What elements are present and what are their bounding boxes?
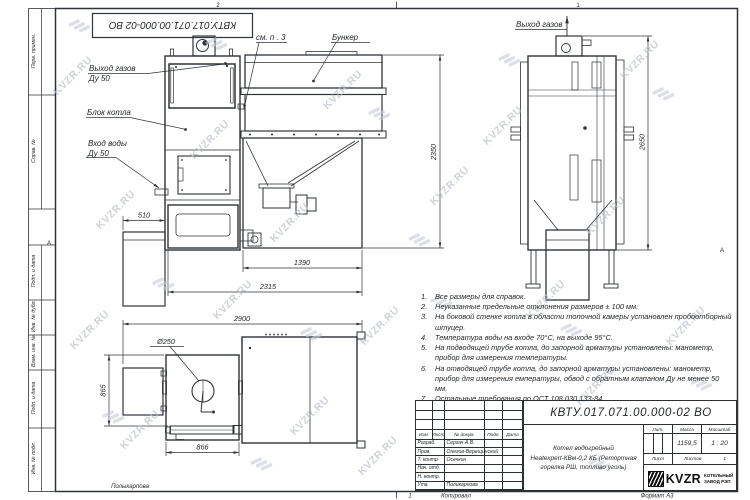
logo-subtitle: КОТЕЛЬНЫЙ ЗАВОД РЭП (704, 473, 733, 485)
note-number: 3. (420, 312, 435, 332)
revision-cell (485, 411, 503, 421)
zone-right-a: А (720, 248, 724, 254)
note-item: 2.Неуказанные предельные отклонения разм… (420, 302, 732, 312)
signature-sign (485, 448, 503, 456)
callout-bunker: Бункер (332, 33, 359, 42)
signature-date (503, 482, 523, 490)
col-header-date: Дата (503, 430, 523, 440)
signature-sign (485, 440, 503, 448)
callout-water-in-size: Ду 50 (87, 149, 109, 158)
note-text: На боковой стенке котла в области топочн… (435, 312, 732, 332)
scale-label: Масштаб (702, 425, 738, 434)
watermark: KVZR.RU (358, 304, 402, 348)
title-block: Изм. Лист № докум. Подп. Дата Разраб. Се… (415, 400, 737, 491)
dim-label-510: 510 (138, 211, 150, 220)
lit-cells (644, 434, 673, 454)
note-number: 2. (420, 302, 435, 312)
product-line: Котел водогрейный (553, 444, 614, 454)
dim-label-1390: 1390 (294, 258, 310, 267)
col-header-doc: № докум. (445, 430, 485, 440)
signature-date (503, 440, 523, 448)
signature-role: Разраб. (416, 440, 445, 448)
dim-label-2650: 2650 (638, 134, 647, 151)
revision-cell (503, 420, 523, 430)
note-number: 1. (420, 292, 435, 302)
signature-name: Поликарпова (445, 482, 485, 490)
mass-label: Масса (673, 425, 702, 434)
kvzr-stripes-icon (649, 472, 663, 486)
signature-name: Сергач А.В. (445, 440, 485, 448)
margin-label: Подп. и дата (31, 382, 37, 415)
note-number: 5. (420, 343, 435, 363)
callout-see-note: см. п . 3 (256, 33, 286, 42)
dim-label-865: 865 (99, 383, 108, 396)
margin-label: Инв. № дубл. (31, 300, 37, 332)
footer-signature: Полыкарпова (111, 484, 149, 490)
watermark: KVZR.RU (428, 164, 472, 208)
signature-role: Т. контр. (416, 456, 445, 464)
zone-left-a: А (47, 241, 51, 247)
revision-cell (503, 401, 523, 411)
watermark: KVZR.RU (584, 194, 628, 238)
note-item: 6.На отводящей трубе котла, до запорной … (420, 364, 732, 395)
revision-cell (416, 411, 433, 421)
note-item: 3.На боковой стенке котла в области топо… (420, 312, 732, 332)
side-view-callouts: Выход газов Ду 50 Блок котла Вход воды Д… (87, 64, 136, 158)
product-name: Котел водогрейный Heatexpert-КВм-0,2 КБ … (523, 425, 643, 492)
margin-column-labels: Перв. примен. Справ. № Подп. и дата Инв.… (31, 34, 37, 474)
note-text: Неуказанные предельные отклонения размер… (435, 302, 732, 312)
plan-view-drawing (123, 332, 365, 448)
lit-label: Лит. (644, 425, 673, 434)
note-text: На отводящей трубе котла, до запорной ар… (435, 364, 732, 395)
dim-label-866: 866 (196, 443, 209, 452)
sheets-cell: Листов 1 (673, 454, 738, 465)
top-stamp-number: КВТУ.017.071.00.000-02 ВО (109, 19, 237, 30)
callout-gas-out-size: Ду 50 (88, 74, 110, 83)
right-view-callouts: Выход газов (516, 20, 563, 29)
signature-role: Пров. (416, 448, 445, 456)
note-item: 1.Все размеры для справок. (420, 292, 732, 302)
company-logo: KVZR КОТЕЛЬНЫЙ ЗАВОД РЭП (644, 465, 738, 492)
margin-label: Подп. и дата (31, 255, 37, 288)
sheet-label: Лист (644, 454, 673, 465)
signature-role: Утв. (416, 482, 445, 490)
signature-sign (485, 456, 503, 464)
revision-cell (433, 420, 445, 430)
col-header-list: Лист (433, 430, 445, 440)
drawing-sheet: Перв. примен. Справ. № Подп. и дата Инв.… (0, 0, 750, 500)
watermark: KVZR.RU (68, 308, 112, 352)
signature-name (445, 465, 485, 473)
sheets-label: Листов (684, 457, 701, 462)
revision-cell (416, 401, 433, 411)
revision-cell (445, 401, 485, 411)
dim-label-250: Ø250 (156, 337, 175, 346)
revision-cell (433, 411, 445, 421)
scale-value: 1 : 20 (702, 434, 738, 454)
footer-format: Формат А3 (641, 494, 674, 500)
product-line: Heatexpert-КВм-0,2 КБ (Ретортная (530, 454, 636, 464)
footer-copied: Копировал (441, 494, 471, 500)
signature-role: Нач. отд. (416, 465, 445, 473)
front-view-drawing (238, 52, 386, 249)
revision-cell (485, 420, 503, 430)
watermark: KVZR.RU (94, 188, 138, 232)
signature-date (503, 456, 523, 464)
watermark: KVZR.RU (188, 118, 232, 162)
technical-notes: 1.Все размеры для справок. 2.Неуказанные… (420, 292, 732, 404)
callout-gas-out: Выход газов (89, 64, 136, 73)
note-number: 6. (420, 364, 435, 395)
note-text: Все размеры для справок. (435, 292, 732, 302)
col-header-sign: Подп. (485, 430, 503, 440)
document-number: КВТУ.017.071.00.000-02 ВО (523, 401, 738, 425)
lit-mass-scale-header: Лит. Масса Масштаб (644, 425, 738, 434)
revision-cell (485, 401, 503, 411)
watermark: KVZR.RU (618, 38, 662, 82)
signature-name: Онегов-Верещинский (445, 448, 485, 456)
margin-label: Взам. инв. № (31, 335, 37, 367)
watermark: KVZR.RU (321, 68, 365, 112)
callout-boiler-block: Блок котла (87, 108, 131, 117)
footer-zone: 1 (408, 494, 411, 500)
signature-date (503, 473, 523, 481)
signature-sign (485, 482, 503, 490)
front-view-callouts: см. п . 3 Бункер (256, 33, 359, 42)
signature-name (445, 473, 485, 481)
dim-label-2350: 2350 (429, 144, 438, 161)
revision-cell (433, 401, 445, 411)
col-header-izm: Изм. (416, 430, 433, 440)
signature-sign (485, 465, 503, 473)
dim-label-2900: 2900 (233, 314, 250, 323)
revision-cell (416, 420, 433, 430)
signature-name: Осечкин (445, 456, 485, 464)
lit-mass-scale-values: 1159,5 1 : 20 (644, 434, 738, 454)
title-block-signatures: Изм. Лист № докум. Подп. Дата Разраб. Се… (416, 401, 523, 490)
watermark: KVZR.RU (481, 104, 525, 148)
sheets-value: 1 (723, 457, 726, 462)
mass-value: 1159,5 (673, 434, 702, 454)
product-line: горелка РШ, топливо уголь) (541, 463, 627, 473)
revision-cell (445, 420, 485, 430)
sheet-row: Лист Листов 1 (644, 454, 738, 465)
note-text: На подводящей трубе котла, до запорной а… (435, 343, 732, 363)
callout-gas-out-right: Выход газов (516, 20, 563, 29)
margin-label: Инв. № подл. (31, 442, 37, 474)
callout-water-in: Вход воды (88, 139, 127, 148)
side-view-drawing (123, 36, 253, 306)
signature-date (503, 465, 523, 473)
signature-role: Н. контр. (416, 473, 445, 481)
watermark: KVZR.RU (356, 434, 400, 478)
title-block-right: Лит. Масса Масштаб 1159,5 1 : 20 Лист Ли… (643, 425, 738, 492)
signature-sign (485, 473, 503, 481)
margin-label: Справ. № (31, 139, 37, 163)
logo-subtitle-line: ЗАВОД РЭП (704, 479, 733, 485)
revision-cell (503, 411, 523, 421)
revision-cell (445, 411, 485, 421)
note-text: Температура воды на входе 70°С, на выход… (435, 333, 732, 343)
logo-brand-text: KVZR (666, 472, 701, 486)
margin-label: Перв. примен. (31, 34, 37, 68)
signature-date (503, 448, 523, 456)
note-item: 5.На подводящей трубе котла, до запорной… (420, 343, 732, 363)
dim-250-leader (150, 347, 199, 382)
right-view-drawing (511, 36, 634, 300)
note-number: 4. (420, 333, 435, 343)
note-item: 4.Температура воды на входе 70°С, на вых… (420, 333, 732, 343)
dim-label-2315: 2315 (259, 282, 277, 291)
top-stamp: КВТУ.017.071.00.000-02 ВО (93, 14, 253, 38)
